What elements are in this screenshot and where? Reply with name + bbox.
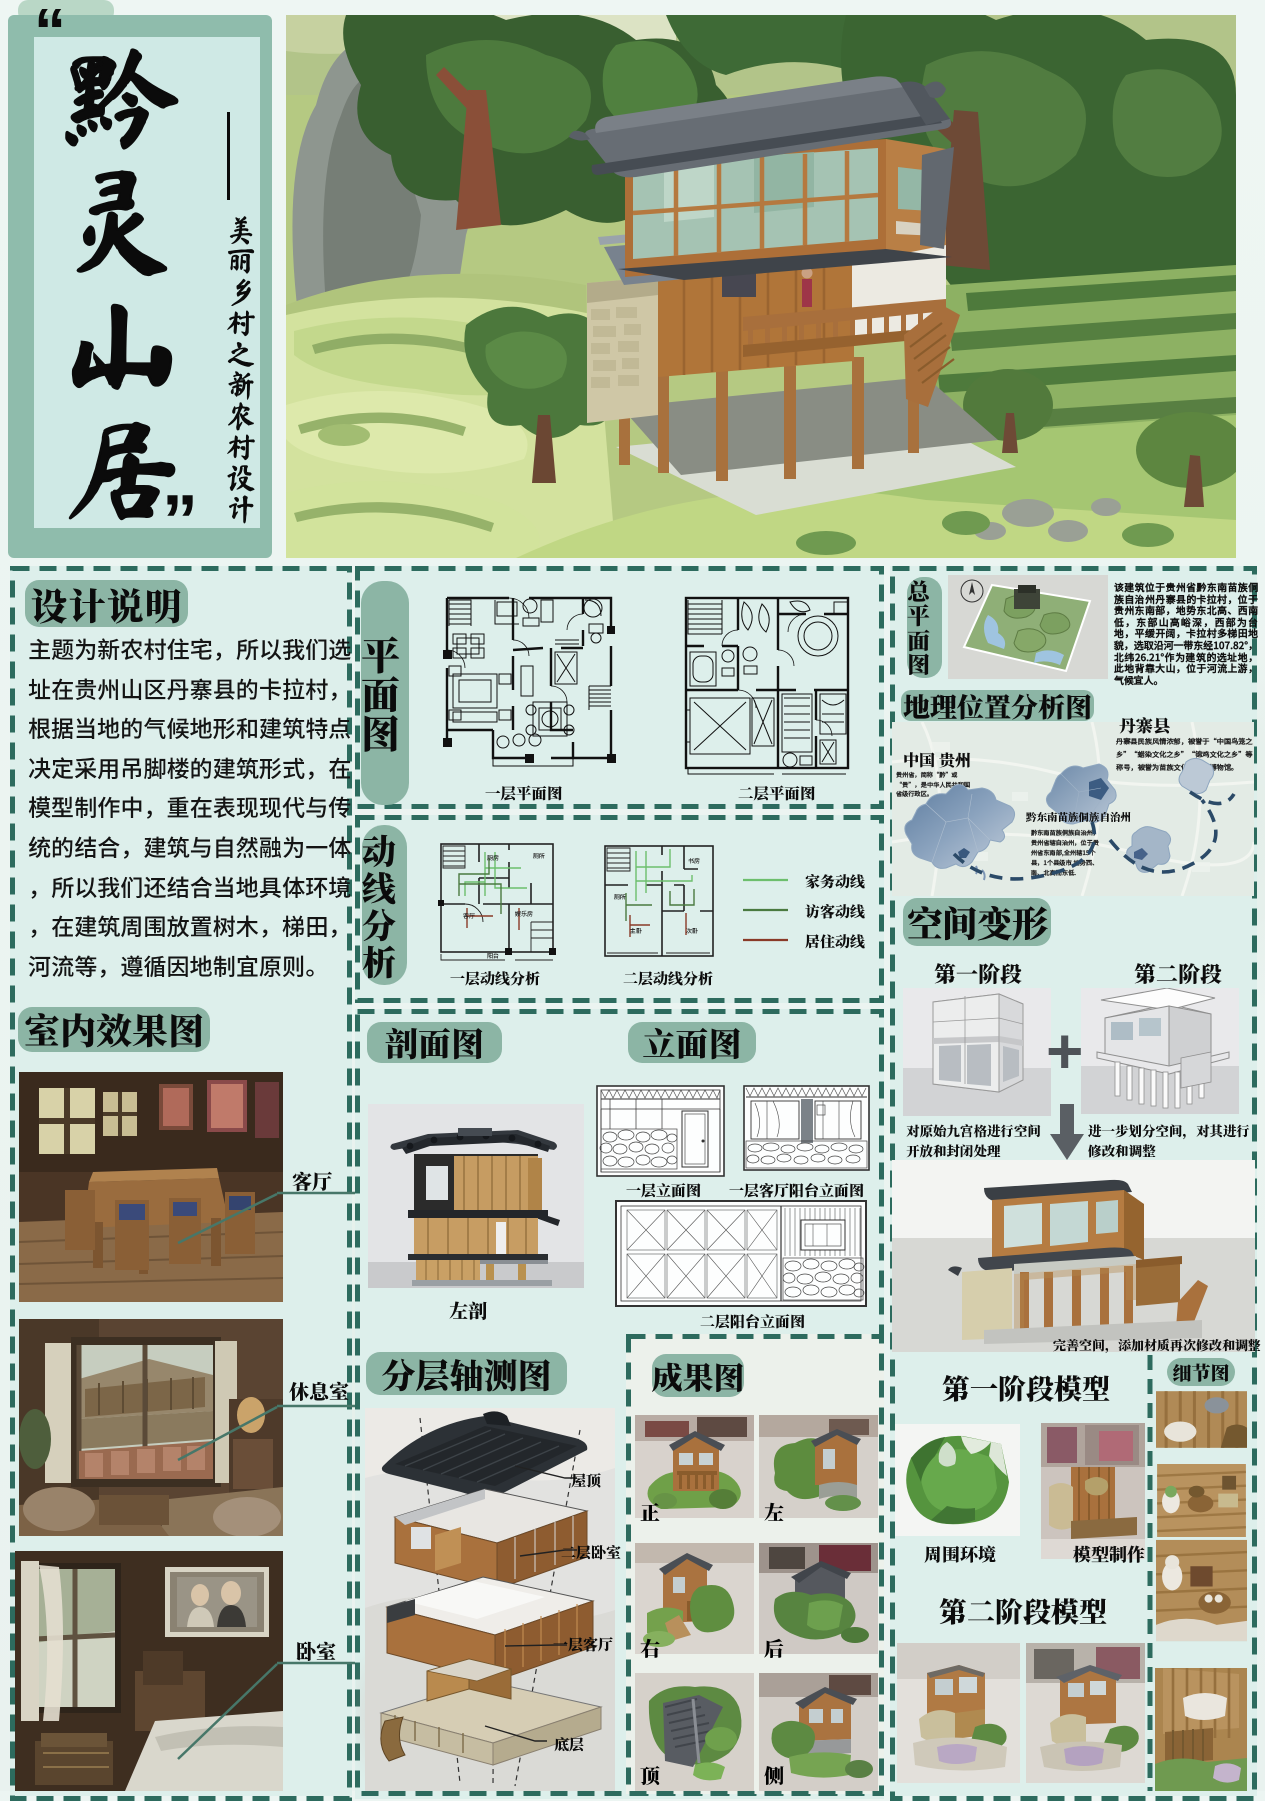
svg-text:厕所: 厕所 [533,851,545,860]
svg-text:主卧: 主卧 [630,926,643,935]
svg-text:客厅: 客厅 [463,911,476,920]
svg-text:厕所: 厕所 [614,892,626,901]
svg-text:厨房: 厨房 [487,853,499,862]
svg-text:阳台: 阳台 [487,951,499,960]
svg-text:次卧: 次卧 [686,926,699,935]
svg-text:娱乐房: 娱乐房 [514,909,533,918]
svg-text:书房: 书房 [688,856,700,865]
